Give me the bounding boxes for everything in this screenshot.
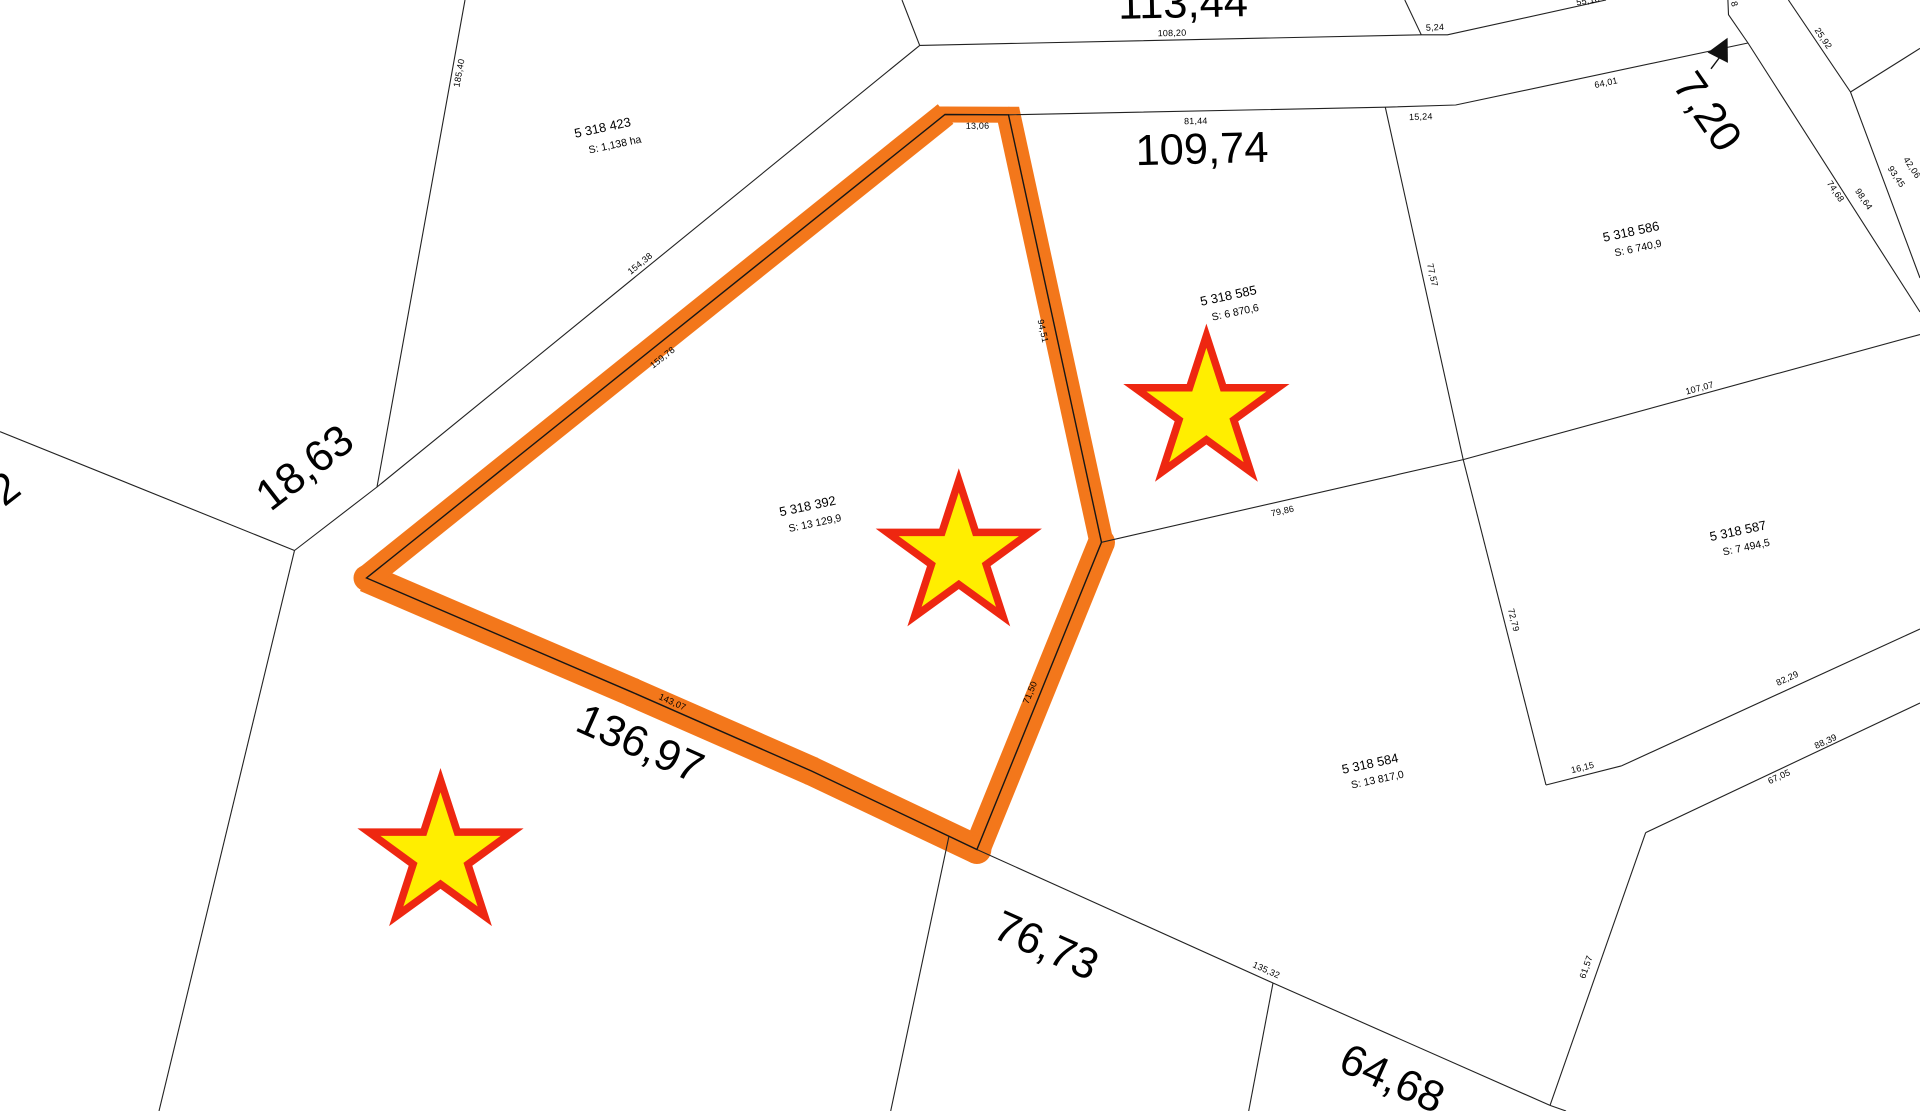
svg-text:81,44: 81,44 [1184,116,1208,126]
svg-text:113,44: 113,44 [1118,0,1249,29]
svg-text:108,20: 108,20 [1158,28,1187,39]
svg-text:5,24: 5,24 [1426,22,1445,33]
svg-text:13,06: 13,06 [966,121,990,131]
svg-text:109,74: 109,74 [1135,124,1269,175]
svg-text:15,24: 15,24 [1409,111,1433,122]
